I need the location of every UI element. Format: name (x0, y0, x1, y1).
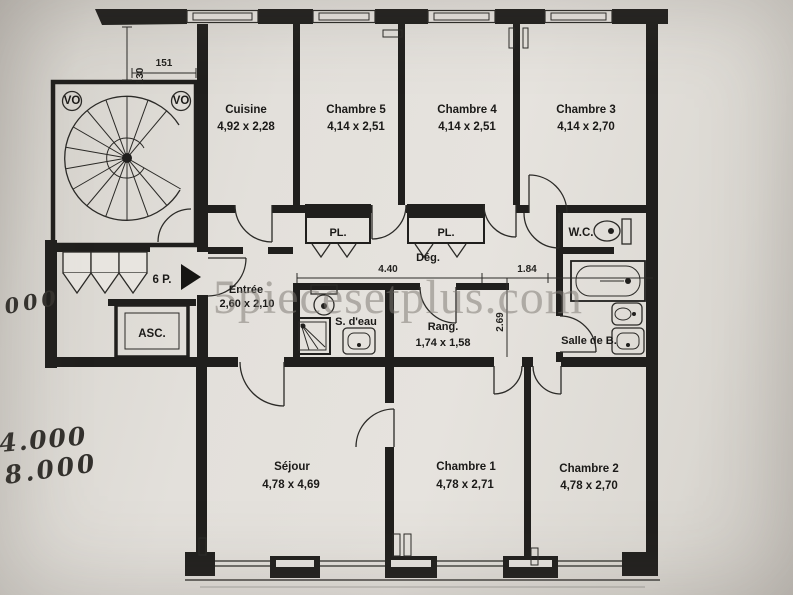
closet-label: PL. (437, 227, 454, 239)
room-dims-chambre1: 4,78 x 2,71 (436, 479, 494, 491)
room-label-sejour: Séjour (274, 461, 310, 473)
floor-plan-drawing: VO VO ASC. 6 P. PL. (0, 0, 793, 595)
door-arc (356, 409, 394, 447)
room-label-wc: W.C. (569, 227, 594, 239)
room-dims-chambre4: 4,14 x 2,51 (438, 121, 496, 133)
toilet-icon (594, 219, 631, 244)
room-dims-chambre5: 4,14 x 2,51 (327, 121, 385, 133)
room-dims-cuisine: 4,92 x 2,28 (217, 121, 275, 133)
elevator-label: ASC. (138, 328, 165, 340)
door-arc (524, 213, 559, 248)
door-arc (372, 205, 406, 239)
elevator: ASC. (116, 305, 188, 357)
bottom-wall (185, 552, 660, 587)
radiator-icon (270, 556, 320, 578)
room-label-chambre2: Chambre 2 (559, 463, 618, 475)
door-arc (240, 362, 284, 406)
bidet-icon (612, 303, 642, 325)
room-label-chambre3: Chambre 3 (556, 104, 615, 116)
closet-pl2: PL. (408, 205, 484, 257)
window-icon (313, 11, 375, 23)
door-arc (533, 366, 561, 394)
radiator-icon (385, 556, 437, 578)
spiral-staircase-icon (65, 96, 181, 220)
stair-steps-icon (63, 252, 147, 293)
room-label-chambre4: Chambre 4 (437, 104, 497, 116)
closet-pl1: PL. (306, 205, 370, 257)
sink-icon (343, 328, 375, 354)
floor-plan-photo: VO VO ASC. 6 P. PL. (0, 0, 793, 595)
room-dims-chambre2: 4,78 x 2,70 (560, 480, 618, 492)
room-label-degagement: Dég. (416, 252, 440, 264)
watermark-text: 5piecesetplus.com (213, 271, 583, 324)
dim-130: 130 (135, 67, 146, 84)
door-arc (494, 366, 522, 394)
entry-arrow-icon (181, 264, 201, 290)
room-label-chambre1: Chambre 1 (436, 461, 496, 473)
vo-label: VO (173, 95, 190, 107)
door-arc (235, 205, 272, 242)
room-label-cuisine: Cuisine (225, 104, 267, 116)
apartment-type-label: 6 P. (153, 274, 172, 286)
wc-fixtures (594, 219, 631, 244)
dim-151: 151 (156, 58, 173, 69)
stairwell: VO VO (45, 82, 196, 368)
room-dims-sejour: 4,78 x 4,69 (262, 479, 320, 491)
window-icon (187, 11, 258, 23)
door-arc (484, 205, 516, 237)
closet-label: PL. (329, 227, 346, 239)
room-label-chambre5: Chambre 5 (326, 104, 386, 116)
window-icon (545, 11, 612, 23)
right-wall (646, 9, 658, 572)
vo-shaft-right: VO (172, 92, 191, 111)
room-dims-rangement: 1,74 x 1,58 (415, 337, 470, 349)
room-dims-chambre3: 4,14 x 2,70 (557, 121, 615, 133)
door-arc (158, 209, 191, 242)
room-label-salle-de-bain: Salle de B. (561, 335, 617, 347)
vo-label: VO (64, 95, 81, 107)
vo-shaft-left: VO (63, 92, 82, 111)
window-icon (428, 11, 495, 23)
